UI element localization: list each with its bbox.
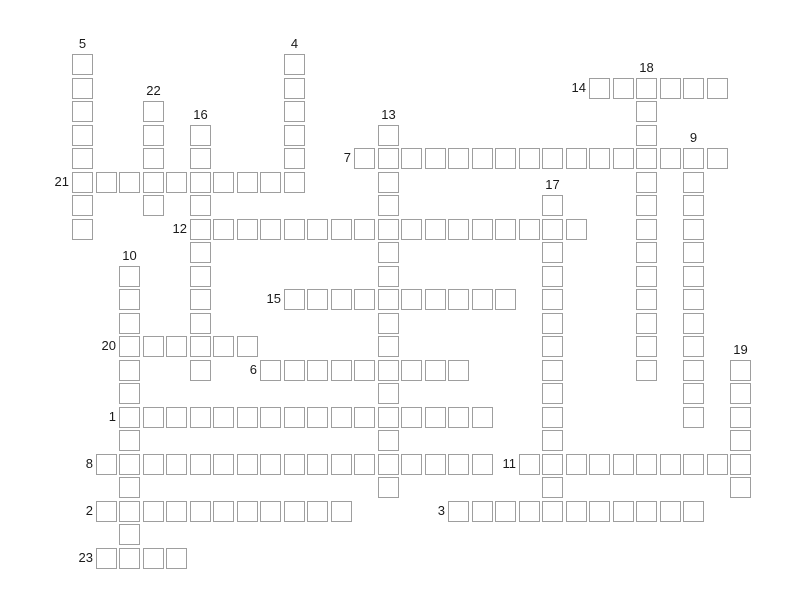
grid-cell[interactable] xyxy=(683,336,704,357)
grid-cell[interactable] xyxy=(378,407,399,428)
grid-cell[interactable] xyxy=(613,501,634,522)
grid-cell[interactable] xyxy=(378,266,399,287)
grid-cell[interactable] xyxy=(143,172,164,193)
grid-cell[interactable] xyxy=(119,454,140,475)
grid-cell[interactable] xyxy=(730,360,751,381)
grid-cell[interactable] xyxy=(683,289,704,310)
grid-cell[interactable] xyxy=(354,454,375,475)
grid-cell[interactable] xyxy=(284,148,305,169)
grid-cell[interactable] xyxy=(119,430,140,451)
grid-cell[interactable] xyxy=(730,383,751,404)
grid-cell[interactable] xyxy=(307,289,328,310)
grid-cell[interactable] xyxy=(730,430,751,451)
grid-cell[interactable] xyxy=(307,219,328,240)
grid-cell[interactable] xyxy=(378,383,399,404)
grid-cell[interactable] xyxy=(284,219,305,240)
grid-cell[interactable] xyxy=(190,148,211,169)
grid-cell[interactable] xyxy=(190,125,211,146)
grid-cell[interactable] xyxy=(683,501,704,522)
grid-cell[interactable] xyxy=(284,407,305,428)
grid-cell[interactable] xyxy=(72,54,93,75)
grid-cell[interactable] xyxy=(542,313,563,334)
grid-cell[interactable] xyxy=(331,289,352,310)
grid-cell[interactable] xyxy=(425,289,446,310)
grid-cell[interactable] xyxy=(72,195,93,216)
grid-cell[interactable] xyxy=(660,148,681,169)
crossword-board: 1234567891011121314151617181920212223 xyxy=(0,0,800,600)
grid-cell[interactable] xyxy=(260,172,281,193)
clue-number: 1 xyxy=(85,410,116,424)
grid-cell[interactable] xyxy=(260,454,281,475)
grid-cell[interactable] xyxy=(166,454,187,475)
clue-number: 21 xyxy=(38,175,69,189)
grid-cell[interactable] xyxy=(636,242,657,263)
grid-cell[interactable] xyxy=(378,477,399,498)
grid-cell[interactable] xyxy=(683,383,704,404)
grid-cell[interactable] xyxy=(119,548,140,569)
grid-cell[interactable] xyxy=(589,501,610,522)
grid-cell[interactable] xyxy=(401,148,422,169)
grid-cell[interactable] xyxy=(401,454,422,475)
clue-number: 22 xyxy=(138,84,169,98)
grid-cell[interactable] xyxy=(542,360,563,381)
clue-number: 16 xyxy=(185,108,216,122)
grid-cell[interactable] xyxy=(589,148,610,169)
grid-cell[interactable] xyxy=(331,360,352,381)
grid-cell[interactable] xyxy=(284,454,305,475)
grid-cell[interactable] xyxy=(143,454,164,475)
grid-cell[interactable] xyxy=(542,289,563,310)
grid-cell[interactable] xyxy=(636,266,657,287)
grid-cell[interactable] xyxy=(213,454,234,475)
grid-cell[interactable] xyxy=(307,407,328,428)
grid-cell[interactable] xyxy=(636,195,657,216)
grid-cell[interactable] xyxy=(260,219,281,240)
grid-cell[interactable] xyxy=(119,360,140,381)
grid-cell[interactable] xyxy=(636,289,657,310)
grid-cell[interactable] xyxy=(448,454,469,475)
clue-number: 2 xyxy=(62,504,93,518)
grid-cell[interactable] xyxy=(636,501,657,522)
grid-cell[interactable] xyxy=(237,501,258,522)
grid-cell[interactable] xyxy=(72,101,93,122)
grid-cell[interactable] xyxy=(401,407,422,428)
grid-cell[interactable] xyxy=(284,289,305,310)
grid-cell[interactable] xyxy=(96,548,117,569)
clue-number: 6 xyxy=(226,363,257,377)
grid-cell[interactable] xyxy=(425,407,446,428)
grid-cell[interactable] xyxy=(636,101,657,122)
grid-cell[interactable] xyxy=(495,148,516,169)
grid-cell[interactable] xyxy=(378,242,399,263)
grid-cell[interactable] xyxy=(519,219,540,240)
grid-cell[interactable] xyxy=(354,289,375,310)
grid-cell[interactable] xyxy=(636,78,657,99)
grid-cell[interactable] xyxy=(519,148,540,169)
grid-cell[interactable] xyxy=(284,125,305,146)
grid-cell[interactable] xyxy=(213,172,234,193)
grid-cell[interactable] xyxy=(636,336,657,357)
grid-cell[interactable] xyxy=(143,125,164,146)
grid-cell[interactable] xyxy=(636,125,657,146)
grid-cell[interactable] xyxy=(331,454,352,475)
grid-cell[interactable] xyxy=(119,407,140,428)
grid-cell[interactable] xyxy=(472,289,493,310)
grid-cell[interactable] xyxy=(190,219,211,240)
grid-cell[interactable] xyxy=(237,454,258,475)
grid-cell[interactable] xyxy=(354,407,375,428)
grid-cell[interactable] xyxy=(683,313,704,334)
clue-number: 9 xyxy=(678,131,709,145)
grid-cell[interactable] xyxy=(378,219,399,240)
grid-cell[interactable] xyxy=(730,454,751,475)
grid-cell[interactable] xyxy=(425,219,446,240)
grid-cell[interactable] xyxy=(307,454,328,475)
clue-number: 12 xyxy=(156,222,187,236)
grid-cell[interactable] xyxy=(96,172,117,193)
grid-cell[interactable] xyxy=(190,360,211,381)
grid-cell[interactable] xyxy=(166,172,187,193)
clue-number: 23 xyxy=(62,551,93,565)
grid-cell[interactable] xyxy=(542,242,563,263)
grid-cell[interactable] xyxy=(143,407,164,428)
grid-cell[interactable] xyxy=(354,360,375,381)
grid-cell[interactable] xyxy=(707,148,728,169)
grid-cell[interactable] xyxy=(378,289,399,310)
clue-number: 4 xyxy=(279,37,310,51)
grid-cell[interactable] xyxy=(378,148,399,169)
grid-cell[interactable] xyxy=(425,360,446,381)
grid-cell[interactable] xyxy=(542,477,563,498)
grid-cell[interactable] xyxy=(237,172,258,193)
clue-number: 20 xyxy=(85,339,116,353)
grid-cell[interactable] xyxy=(495,219,516,240)
grid-cell[interactable] xyxy=(472,219,493,240)
grid-cell[interactable] xyxy=(378,125,399,146)
grid-cell[interactable] xyxy=(284,501,305,522)
grid-cell[interactable] xyxy=(566,148,587,169)
grid-cell[interactable] xyxy=(331,407,352,428)
grid-cell[interactable] xyxy=(683,78,704,99)
grid-cell[interactable] xyxy=(425,148,446,169)
clue-number: 15 xyxy=(250,292,281,306)
grid-cell[interactable] xyxy=(284,360,305,381)
grid-cell[interactable] xyxy=(119,336,140,357)
grid-cell[interactable] xyxy=(119,313,140,334)
clue-number: 3 xyxy=(414,504,445,518)
clue-number: 10 xyxy=(114,249,145,263)
grid-cell[interactable] xyxy=(378,430,399,451)
grid-cell[interactable] xyxy=(143,195,164,216)
grid-cell[interactable] xyxy=(354,219,375,240)
grid-cell[interactable] xyxy=(378,360,399,381)
grid-cell[interactable] xyxy=(425,454,446,475)
clue-number: 17 xyxy=(537,178,568,192)
grid-cell[interactable] xyxy=(448,407,469,428)
grid-cell[interactable] xyxy=(542,195,563,216)
grid-cell[interactable] xyxy=(636,313,657,334)
grid-cell[interactable] xyxy=(589,454,610,475)
grid-cell[interactable] xyxy=(472,148,493,169)
grid-cell[interactable] xyxy=(378,313,399,334)
grid-cell[interactable] xyxy=(119,289,140,310)
grid-cell[interactable] xyxy=(707,454,728,475)
grid-cell[interactable] xyxy=(166,336,187,357)
grid-cell[interactable] xyxy=(190,266,211,287)
clue-number: 19 xyxy=(725,343,756,357)
grid-cell[interactable] xyxy=(72,78,93,99)
grid-cell[interactable] xyxy=(119,172,140,193)
grid-cell[interactable] xyxy=(166,407,187,428)
grid-cell[interactable] xyxy=(331,219,352,240)
grid-cell[interactable] xyxy=(542,454,563,475)
grid-cell[interactable] xyxy=(143,548,164,569)
grid-cell[interactable] xyxy=(190,242,211,263)
grid-cell[interactable] xyxy=(495,289,516,310)
clue-number: 14 xyxy=(555,81,586,95)
grid-cell[interactable] xyxy=(566,219,587,240)
grid-cell[interactable] xyxy=(190,289,211,310)
grid-cell[interactable] xyxy=(542,430,563,451)
grid-cell[interactable] xyxy=(307,501,328,522)
grid-cell[interactable] xyxy=(401,219,422,240)
grid-cell[interactable] xyxy=(237,407,258,428)
grid-cell[interactable] xyxy=(213,336,234,357)
grid-cell[interactable] xyxy=(378,195,399,216)
grid-cell[interactable] xyxy=(143,101,164,122)
grid-cell[interactable] xyxy=(378,336,399,357)
grid-cell[interactable] xyxy=(72,125,93,146)
grid-cell[interactable] xyxy=(143,336,164,357)
grid-cell[interactable] xyxy=(190,501,211,522)
grid-cell[interactable] xyxy=(166,501,187,522)
grid-cell[interactable] xyxy=(237,336,258,357)
grid-cell[interactable] xyxy=(730,477,751,498)
grid-cell[interactable] xyxy=(213,501,234,522)
grid-cell[interactable] xyxy=(495,501,516,522)
grid-cell[interactable] xyxy=(636,148,657,169)
grid-cell[interactable] xyxy=(660,501,681,522)
grid-cell[interactable] xyxy=(683,360,704,381)
grid-cell[interactable] xyxy=(213,219,234,240)
grid-cell[interactable] xyxy=(143,501,164,522)
clue-number: 7 xyxy=(320,151,351,165)
grid-cell[interactable] xyxy=(542,336,563,357)
grid-cell[interactable] xyxy=(143,148,164,169)
grid-cell[interactable] xyxy=(354,148,375,169)
grid-cell[interactable] xyxy=(119,266,140,287)
grid-cell[interactable] xyxy=(589,78,610,99)
grid-cell[interactable] xyxy=(566,501,587,522)
grid-cell[interactable] xyxy=(542,383,563,404)
grid-cell[interactable] xyxy=(683,454,704,475)
grid-cell[interactable] xyxy=(284,54,305,75)
grid-cell[interactable] xyxy=(401,289,422,310)
grid-cell[interactable] xyxy=(190,313,211,334)
grid-cell[interactable] xyxy=(190,195,211,216)
grid-cell[interactable] xyxy=(237,219,258,240)
grid-cell[interactable] xyxy=(378,172,399,193)
grid-cell[interactable] xyxy=(542,501,563,522)
grid-cell[interactable] xyxy=(284,101,305,122)
grid-cell[interactable] xyxy=(119,477,140,498)
grid-cell[interactable] xyxy=(260,501,281,522)
grid-cell[interactable] xyxy=(448,289,469,310)
grid-cell[interactable] xyxy=(190,407,211,428)
grid-cell[interactable] xyxy=(448,219,469,240)
grid-cell[interactable] xyxy=(284,172,305,193)
grid-cell[interactable] xyxy=(213,407,234,428)
grid-cell[interactable] xyxy=(542,148,563,169)
grid-cell[interactable] xyxy=(683,148,704,169)
grid-cell[interactable] xyxy=(683,195,704,216)
grid-cell[interactable] xyxy=(166,548,187,569)
grid-cell[interactable] xyxy=(190,336,211,357)
grid-cell[interactable] xyxy=(96,501,117,522)
grid-cell[interactable] xyxy=(331,501,352,522)
grid-cell[interactable] xyxy=(542,266,563,287)
grid-cell[interactable] xyxy=(683,407,704,428)
grid-cell[interactable] xyxy=(613,454,634,475)
grid-cell[interactable] xyxy=(96,454,117,475)
grid-cell[interactable] xyxy=(730,407,751,428)
clue-number: 11 xyxy=(485,457,516,471)
grid-cell[interactable] xyxy=(472,501,493,522)
grid-cell[interactable] xyxy=(636,360,657,381)
clue-number: 5 xyxy=(67,37,98,51)
grid-cell[interactable] xyxy=(401,360,422,381)
grid-cell[interactable] xyxy=(542,219,563,240)
grid-cell[interactable] xyxy=(683,172,704,193)
clue-number: 18 xyxy=(631,61,662,75)
grid-cell[interactable] xyxy=(260,360,281,381)
grid-cell[interactable] xyxy=(472,407,493,428)
grid-cell[interactable] xyxy=(613,78,634,99)
grid-cell[interactable] xyxy=(190,454,211,475)
grid-cell[interactable] xyxy=(190,172,211,193)
grid-cell[interactable] xyxy=(119,501,140,522)
grid-cell[interactable] xyxy=(613,148,634,169)
grid-cell[interactable] xyxy=(636,172,657,193)
grid-cell[interactable] xyxy=(683,266,704,287)
grid-cell[interactable] xyxy=(448,501,469,522)
clue-number: 13 xyxy=(373,108,404,122)
grid-cell[interactable] xyxy=(284,78,305,99)
grid-cell[interactable] xyxy=(307,360,328,381)
grid-cell[interactable] xyxy=(683,242,704,263)
grid-cell[interactable] xyxy=(119,383,140,404)
grid-cell[interactable] xyxy=(519,501,540,522)
grid-cell[interactable] xyxy=(119,524,140,545)
grid-cell[interactable] xyxy=(448,148,469,169)
grid-cell[interactable] xyxy=(660,78,681,99)
grid-cell[interactable] xyxy=(72,172,93,193)
grid-cell[interactable] xyxy=(707,78,728,99)
grid-cell[interactable] xyxy=(72,219,93,240)
grid-cell[interactable] xyxy=(519,454,540,475)
grid-cell[interactable] xyxy=(660,454,681,475)
grid-cell[interactable] xyxy=(636,454,657,475)
grid-cell[interactable] xyxy=(260,407,281,428)
grid-cell[interactable] xyxy=(636,219,657,240)
grid-cell[interactable] xyxy=(566,454,587,475)
clue-number: 8 xyxy=(62,457,93,471)
grid-cell[interactable] xyxy=(448,360,469,381)
grid-cell[interactable] xyxy=(378,454,399,475)
grid-cell[interactable] xyxy=(542,407,563,428)
grid-cell[interactable] xyxy=(72,148,93,169)
grid-cell[interactable] xyxy=(683,219,704,240)
